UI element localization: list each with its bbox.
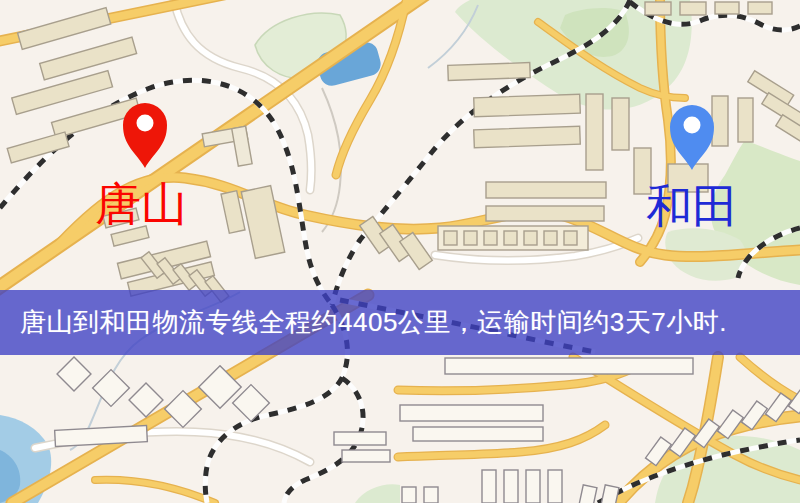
markers-overlay: 唐山 和田 bbox=[0, 0, 800, 503]
destination-marker[interactable]: 和田 bbox=[646, 105, 738, 232]
destination-pin-icon[interactable] bbox=[670, 105, 714, 170]
destination-pin-hole bbox=[684, 117, 701, 134]
route-info-banner: 唐山到和田物流专线全程约4405公里，运输时间约3天7小时. bbox=[0, 290, 800, 355]
route-info-text: 唐山到和田物流专线全程约4405公里，运输时间约3天7小时. bbox=[0, 305, 727, 340]
origin-marker[interactable]: 唐山 bbox=[95, 103, 187, 230]
origin-pin-hole bbox=[137, 115, 154, 132]
map-screenshot: 唐山 和田 唐山到和田物流专线全程约4405公里，运输时间约3天7小时. bbox=[0, 0, 800, 503]
origin-city-label: 唐山 bbox=[95, 179, 187, 230]
destination-city-label: 和田 bbox=[646, 181, 738, 232]
origin-pin-icon[interactable] bbox=[123, 103, 167, 168]
